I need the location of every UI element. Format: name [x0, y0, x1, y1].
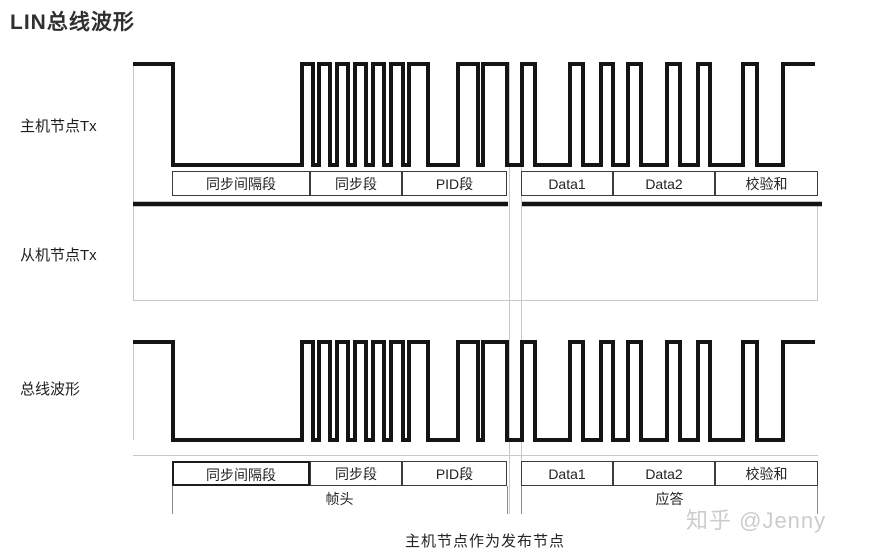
watermark-zhihu-jenny: 知乎 @Jenny — [686, 503, 826, 535]
segment-box-header-0: 同步间隔段 — [172, 461, 310, 486]
guide-lines — [133, 62, 818, 514]
master-tx-waveform — [133, 64, 815, 165]
lin-waveform-diagram: LIN总线波形 主机节点Tx 从机节点Tx 总线波形 同步间隔段同步段PID段D… — [0, 0, 870, 556]
group-label-frame-header: 帧头 — [172, 489, 507, 509]
bus-waveform — [133, 342, 815, 440]
segment-box-header-1: 同步段 — [310, 171, 402, 196]
segment-box-response-4: Data2 — [613, 461, 715, 486]
segment-box-header-0: 同步间隔段 — [172, 171, 310, 196]
segment-box-response-5: 校验和 — [715, 461, 818, 486]
segment-box-header-1: 同步段 — [310, 461, 402, 486]
diagram-caption: 主机节点作为发布节点 — [360, 530, 610, 551]
segment-box-response-5: 校验和 — [715, 171, 818, 196]
segment-box-header-2: PID段 — [402, 171, 507, 196]
group-tick-mid-left — [507, 486, 508, 514]
segment-box-header-2: PID段 — [402, 461, 507, 486]
segment-box-response-3: Data1 — [521, 171, 613, 196]
segment-box-response-3: Data1 — [521, 461, 613, 486]
segment-box-response-4: Data2 — [613, 171, 715, 196]
